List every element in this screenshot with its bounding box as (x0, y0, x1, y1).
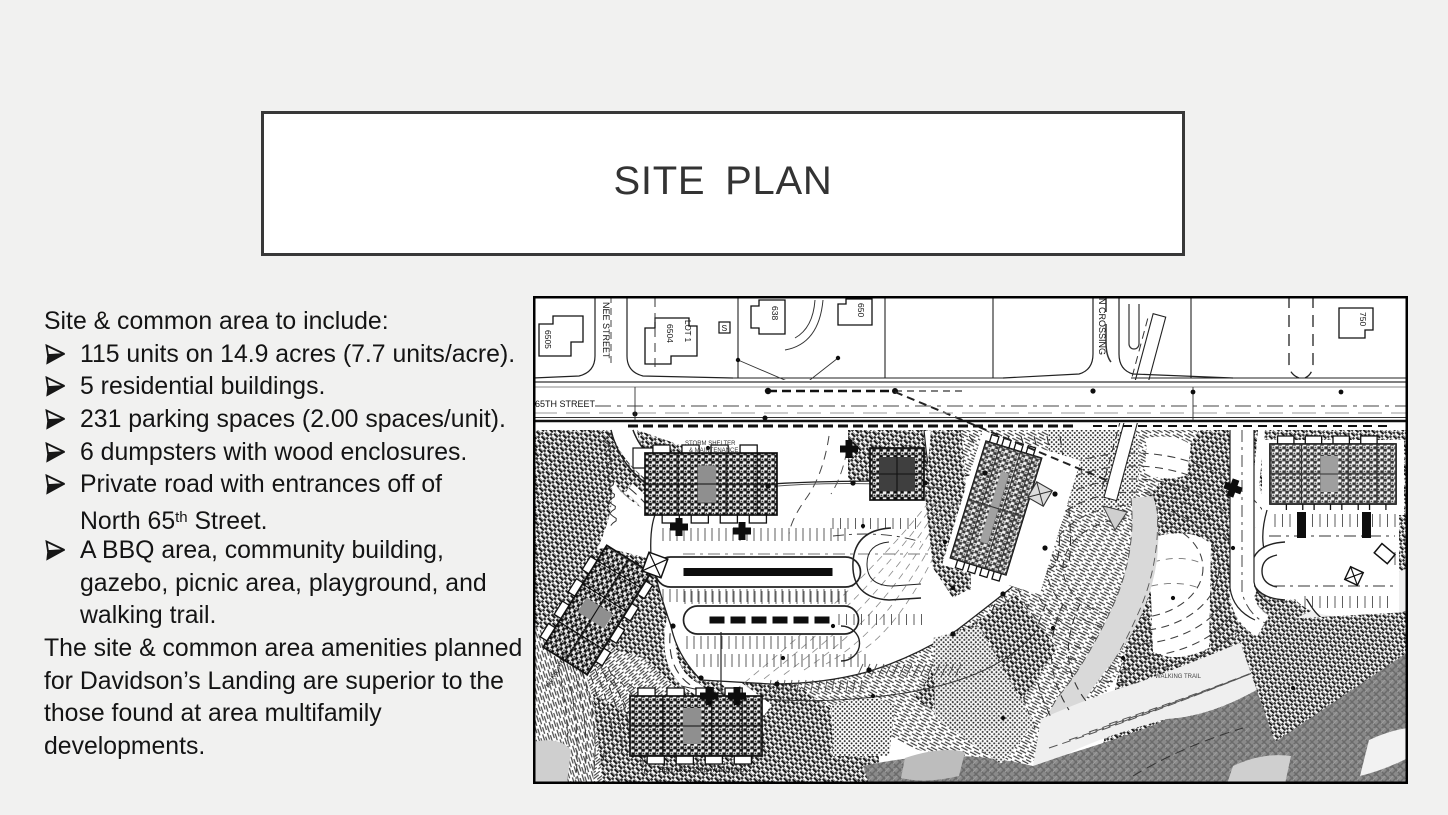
svg-text:650: 650 (856, 303, 866, 317)
svg-text:S: S (722, 323, 728, 333)
svg-text:WALKING TRAIL: WALKING TRAIL (1155, 674, 1202, 680)
svg-text:65TH STREET: 65TH STREET (535, 399, 596, 409)
svg-text:STORM SHELTER: STORM SHELTER (685, 441, 736, 447)
svg-text:6505: 6505 (543, 330, 553, 349)
svg-text:6504: 6504 (665, 324, 675, 343)
svg-text:& MAINTENANCE: & MAINTENANCE (689, 448, 738, 454)
svg-text:LOT 1: LOT 1 (683, 320, 692, 343)
svg-text:BBQ AREA & PLAYGROUND: BBQ AREA & PLAYGROUND (659, 767, 745, 774)
svg-text:NEE STREET: NEE STREET (601, 302, 611, 359)
svg-text:638: 638 (770, 306, 780, 320)
svg-text:750: 750 (1358, 312, 1368, 326)
svg-text:N CROSSING: N CROSSING (1097, 298, 1107, 355)
